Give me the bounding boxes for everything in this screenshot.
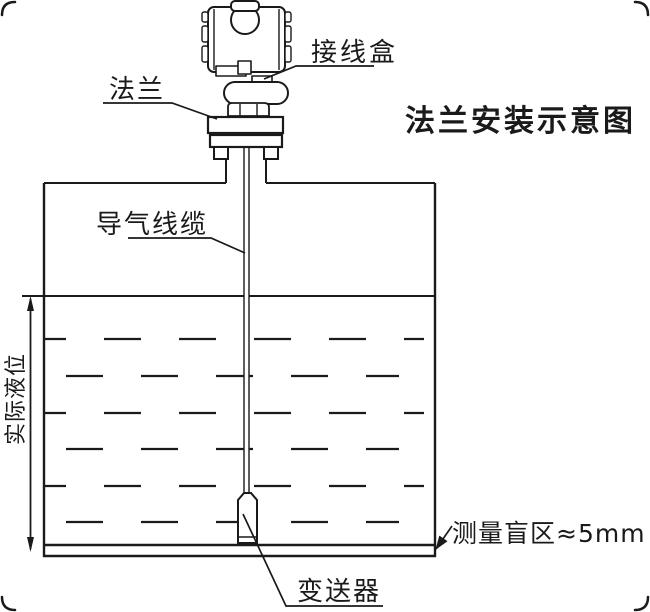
cable-leader <box>128 238 245 253</box>
actual-level-label: 实际液位 <box>4 353 29 445</box>
air-guide-cable <box>244 133 249 494</box>
blind-zone-arrow <box>436 526 452 549</box>
transmitter-head <box>202 1 291 116</box>
liquid-dashes <box>44 339 424 522</box>
conduit-box <box>238 61 251 74</box>
flange-leader <box>103 103 217 119</box>
head-cap <box>231 1 259 11</box>
junction-box-label: 接线盒 <box>311 38 398 68</box>
air-cable-label: 导气线缆 <box>96 210 208 240</box>
flange-label: 法兰 <box>109 75 165 105</box>
diagram-title: 法兰安装示意图 <box>405 104 636 139</box>
process-connection <box>224 82 288 104</box>
probe-weight <box>238 493 257 543</box>
transmitter-label: 变送器 <box>297 577 381 607</box>
hex-nut <box>228 103 269 116</box>
dimension-arrow-down <box>27 537 34 552</box>
dimension-arrow-up <box>27 296 34 311</box>
blind-zone-label: 测量盲区≈5mm <box>452 519 646 548</box>
flange-installation-diagram: 法兰安装示意图 接线盒 法兰 导气线缆 实际液位 测量盲区≈5mm 变送器 <box>0 0 650 612</box>
